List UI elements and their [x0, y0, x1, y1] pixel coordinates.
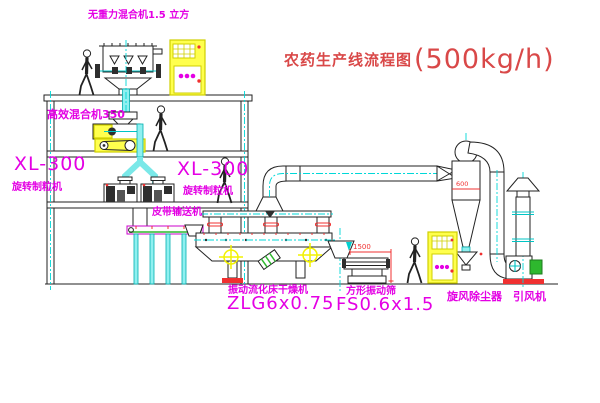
- label-top-mixer: 无重力混合机1.5 立方: [88, 11, 189, 22]
- granulator-left: [104, 177, 137, 202]
- worker-figure-ground: [408, 238, 422, 283]
- process-flow-diagram: 农药生产线流程图 (500kg/h) 无重力混合机1.5 立方 高效混合机350…: [0, 0, 600, 403]
- discharge-chute: [133, 208, 147, 227]
- dimension-cyclone: 600: [456, 181, 468, 188]
- vibrating-screen: [328, 228, 394, 292]
- exhaust-duct: [263, 166, 456, 197]
- title-capacity: (500kg/h): [414, 44, 555, 75]
- dimension-screen-length: 1500: [353, 244, 371, 251]
- control-cabinet-2: [428, 232, 457, 283]
- label-granulator-right-name: 旋转制粒机: [183, 187, 233, 198]
- worker-figure-top-floor: [80, 50, 94, 95]
- control-cabinet-1: [170, 40, 205, 95]
- worker-figure-second-floor: [154, 106, 168, 151]
- label-granulator-left-model: XL-300: [14, 155, 86, 175]
- diagram-title: 农药生产线流程图 (500kg/h): [284, 44, 555, 75]
- label-belt-conveyor: 皮带输送机: [152, 208, 202, 219]
- induced-draft-fan: [503, 256, 544, 284]
- granulator-right: [141, 177, 174, 202]
- fluid-bed-dryer: [185, 197, 336, 283]
- label-cyclone: 旋风除尘器: [447, 291, 502, 303]
- label-screen-model: FS0.6x1.5: [336, 296, 434, 315]
- label-granulator-right-model: XL-300: [177, 160, 249, 180]
- label-dryer-model: ZLG6x0.75: [227, 295, 335, 314]
- title-text: 农药生产线流程图: [284, 49, 412, 70]
- label-fan: 引风机: [513, 291, 546, 303]
- label-granulator-left-name: 旋转制粒机: [12, 183, 62, 194]
- label-mixer350: 高效混合机350: [47, 109, 125, 121]
